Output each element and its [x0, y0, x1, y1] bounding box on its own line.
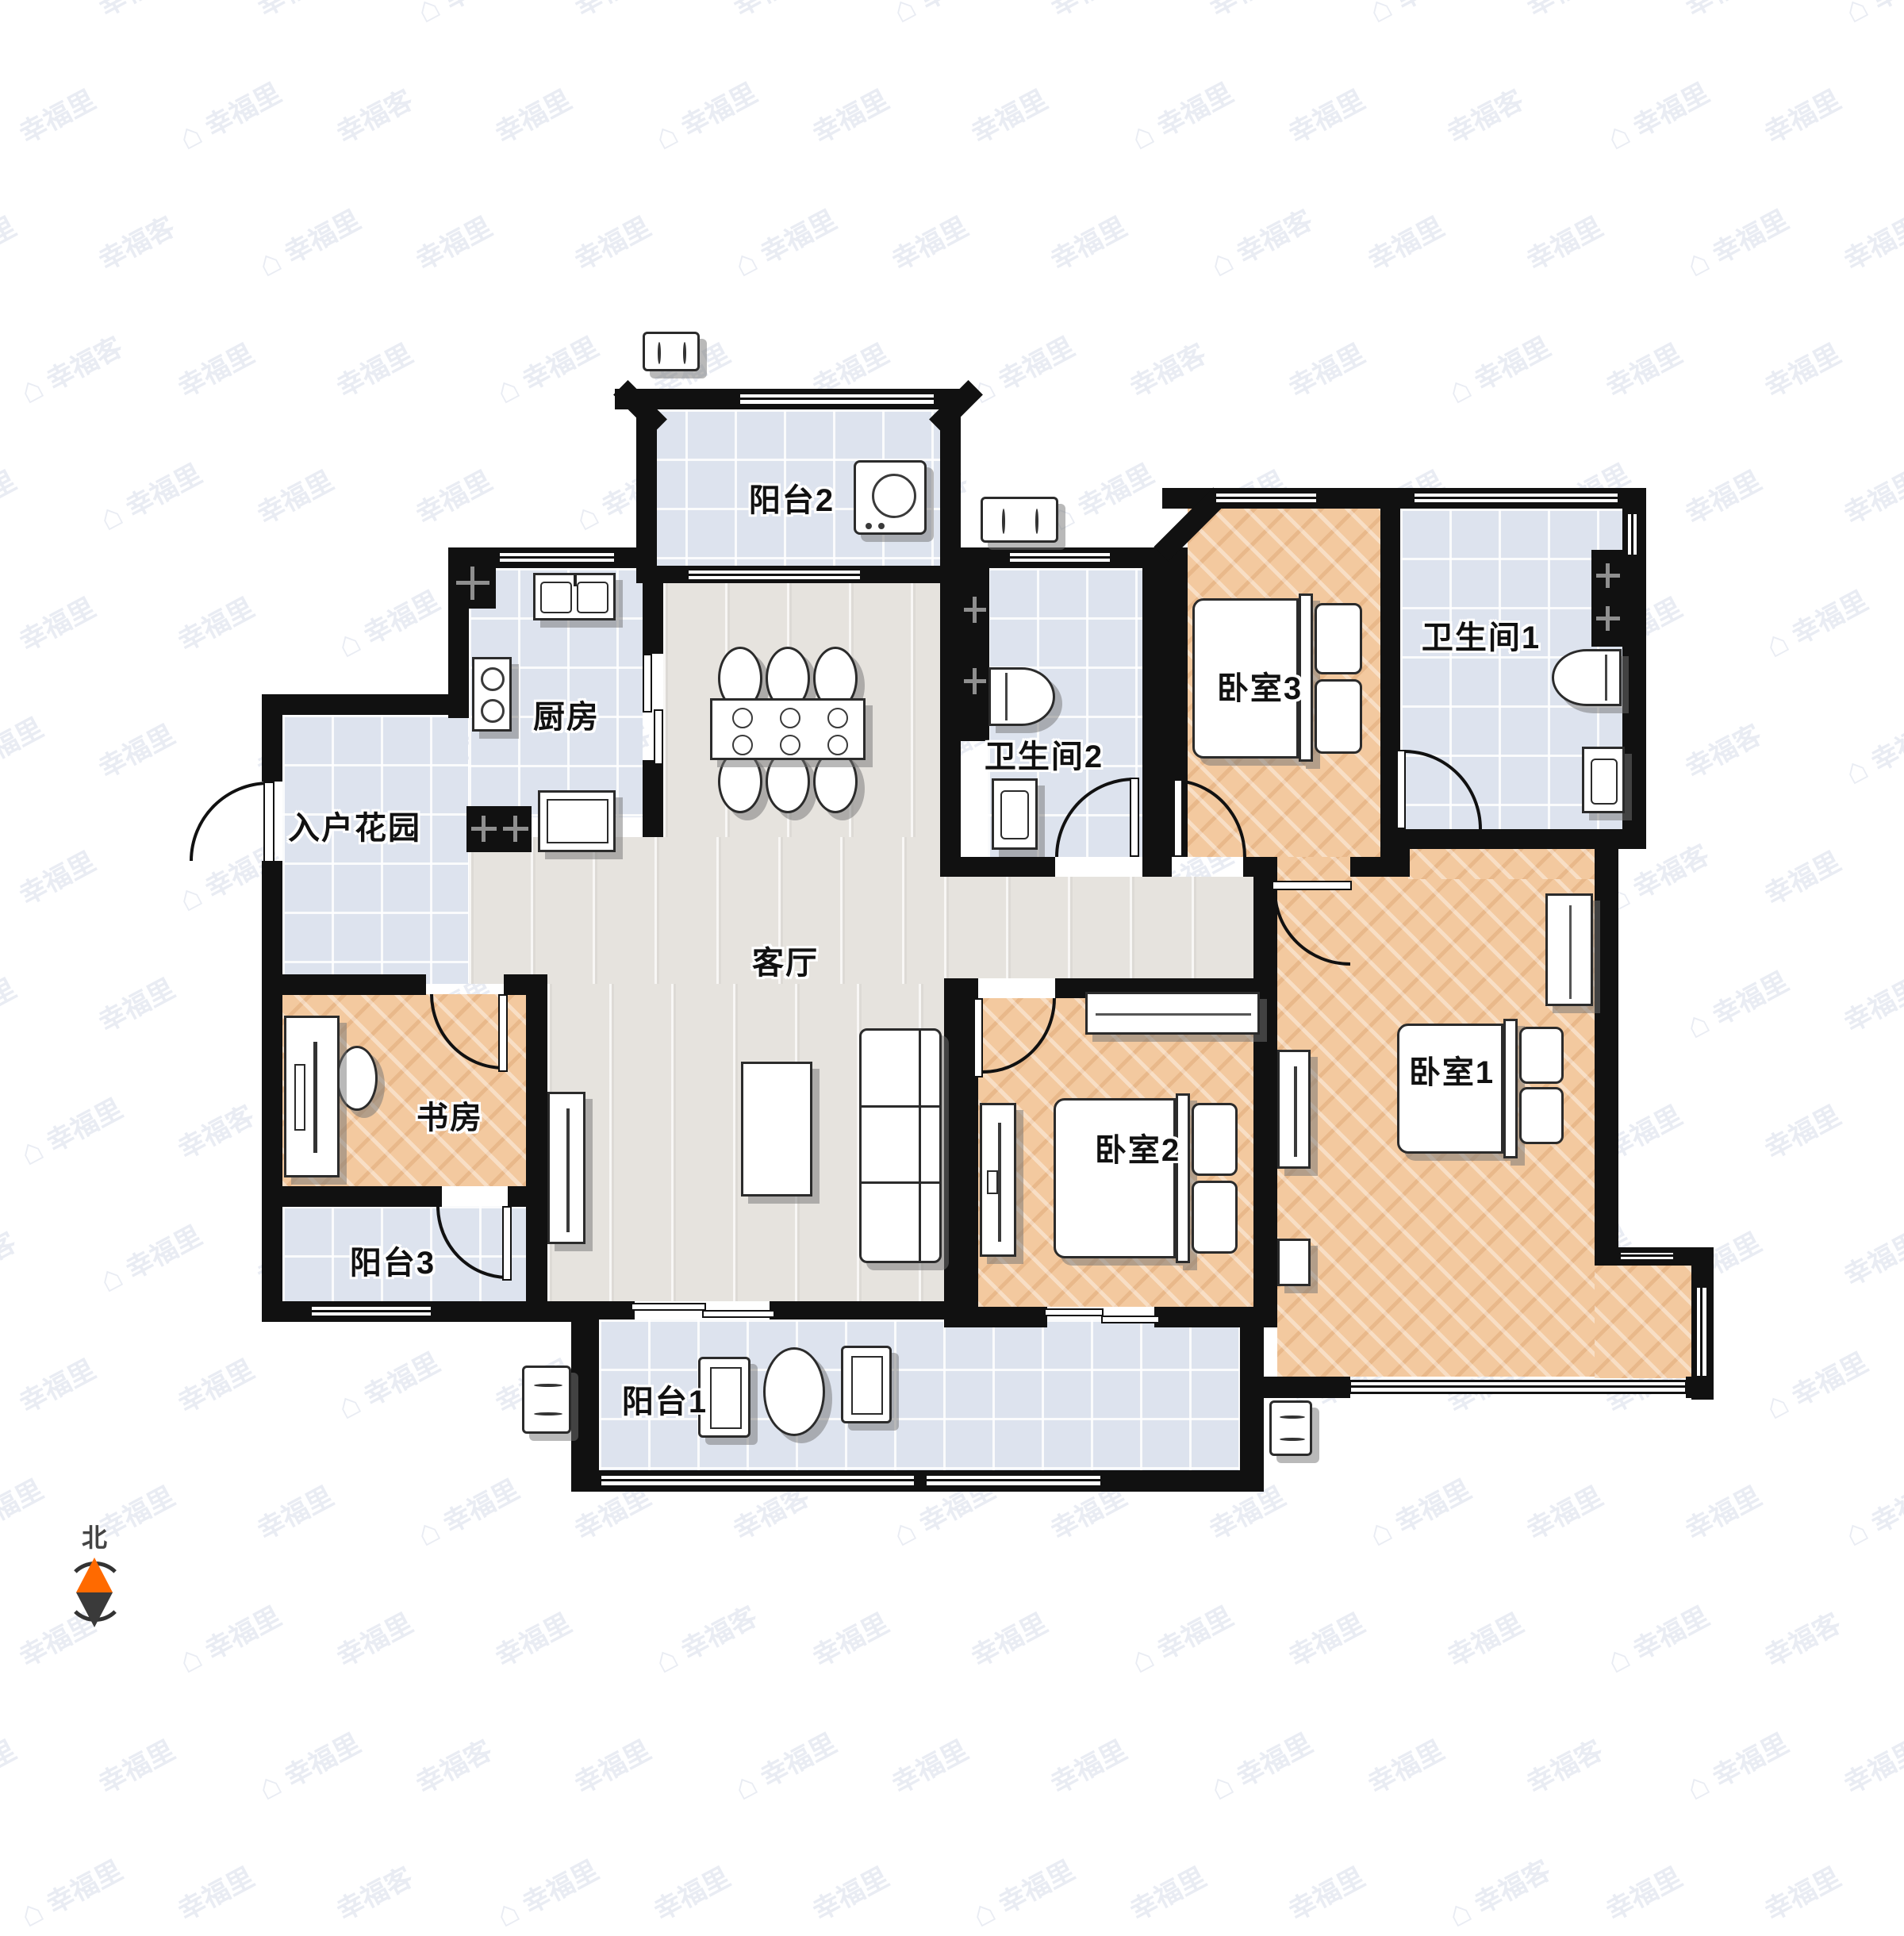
- wall: [1380, 829, 1410, 877]
- washing-machine-icon: [854, 460, 927, 535]
- bedroom2-balcony-sliding-door: [1044, 1308, 1104, 1316]
- balcony3-door-leaf: [502, 1206, 512, 1281]
- pillow-icon: [1315, 679, 1362, 754]
- wall: [1240, 1319, 1264, 1492]
- wall: [262, 974, 426, 995]
- sofa-icon: [859, 1028, 942, 1263]
- coffee-table-icon: [741, 1062, 812, 1197]
- pillow-icon: [1192, 1181, 1238, 1254]
- toilet-icon: [1552, 649, 1622, 706]
- label-bedroom3: 卧室3: [1217, 663, 1303, 709]
- wall: [1253, 1377, 1350, 1398]
- room-living-floor: [469, 837, 944, 984]
- flue-shaft: [466, 806, 532, 852]
- window: [738, 392, 936, 406]
- stove-icon: [472, 657, 512, 732]
- bay-window: [1349, 1380, 1687, 1394]
- label-bath1: 卫生间1: [1422, 612, 1541, 658]
- bath1-door-leaf: [1396, 750, 1406, 829]
- wall: [262, 694, 468, 715]
- wall: [940, 568, 961, 857]
- ac-outdoor-unit-icon: [643, 332, 700, 371]
- desk-chair-icon: [336, 1046, 378, 1111]
- wall: [547, 1301, 635, 1319]
- bathroom-sink-icon: [1582, 747, 1625, 813]
- wall: [1243, 857, 1277, 877]
- floor-plan: 阳台2 厨房 入户花园 卫生间2 卧室3 卫生间1 客厅 书房 阳台3 卧室2 …: [0, 0, 1904, 1904]
- bed-headboard: [1503, 1019, 1518, 1158]
- wall: [636, 409, 657, 568]
- window: [1214, 491, 1319, 505]
- wall: [526, 994, 547, 1304]
- cabinet-icon: [547, 1092, 585, 1244]
- wall: [770, 1301, 952, 1319]
- vent-shaft: [961, 568, 989, 741]
- window: [1008, 551, 1112, 564]
- window: [599, 1473, 916, 1488]
- bath2-door-leaf: [1130, 778, 1139, 857]
- pillow-icon: [1519, 1027, 1564, 1084]
- kitchen-sliding-door: [654, 709, 663, 765]
- wall: [1595, 849, 1618, 1266]
- bedroom2-balcony-sliding-door: [1101, 1316, 1160, 1323]
- wall: [508, 1186, 547, 1207]
- pillow-icon: [1519, 1087, 1564, 1144]
- bedroom3-door-leaf: [1173, 779, 1183, 857]
- wall: [504, 974, 547, 995]
- label-study: 书房: [416, 1092, 483, 1138]
- label-balcony2: 阳台2: [749, 474, 835, 520]
- wall: [1400, 829, 1622, 849]
- desk-icon: [284, 1016, 340, 1177]
- bay-window: [1618, 1250, 1676, 1262]
- label-bedroom1: 卧室1: [1409, 1047, 1495, 1093]
- flue-shaft: [450, 558, 496, 609]
- label-bedroom2: 卧室2: [1095, 1124, 1180, 1170]
- wall: [1686, 1377, 1714, 1398]
- wall: [940, 857, 1055, 877]
- wall: [571, 1301, 599, 1492]
- wall: [262, 1186, 442, 1207]
- ac-outdoor-unit-icon: [1269, 1400, 1312, 1456]
- label-kitchen: 厨房: [533, 691, 600, 737]
- window: [497, 551, 616, 564]
- label-balcony1: 阳台1: [622, 1376, 708, 1422]
- wall: [1142, 857, 1172, 877]
- label-entry-garden: 入户花园: [288, 802, 421, 848]
- window: [1412, 491, 1620, 505]
- compass-north-arrow: [76, 1558, 113, 1592]
- label-living: 客厅: [752, 937, 819, 983]
- bathroom-sink-icon: [992, 778, 1038, 850]
- wall: [262, 861, 282, 1321]
- compass-south-arrow: [76, 1592, 113, 1627]
- study-door-leaf: [498, 994, 508, 1072]
- bedroom1-door-leaf: [1272, 881, 1352, 890]
- balcony1-sliding-door: [702, 1310, 775, 1318]
- toilet-icon: [988, 667, 1055, 726]
- balcony1-sliding-door: [631, 1303, 706, 1311]
- tv-cabinet-icon: [980, 1103, 1016, 1257]
- vent-shaft: [1591, 550, 1625, 647]
- bed-icon: [1054, 1098, 1176, 1258]
- wall: [643, 760, 663, 837]
- window: [1626, 512, 1639, 557]
- bay-window: [1695, 1285, 1709, 1378]
- kitchen-sliding-door: [643, 654, 652, 713]
- fridge-icon: [538, 790, 616, 852]
- wall: [944, 1307, 1047, 1327]
- bedroom2-door-leaf: [973, 998, 983, 1077]
- ac-outdoor-unit-icon: [981, 497, 1058, 543]
- compass-north-label: 北: [82, 1518, 107, 1554]
- wardrobe-icon: [1085, 992, 1260, 1035]
- room-bedroom1-bay-floor: [1595, 1266, 1694, 1378]
- pillow-icon: [1315, 603, 1362, 674]
- entry-door-leaf: [263, 782, 274, 862]
- wall: [1154, 1307, 1277, 1327]
- balcony-chair-icon: [841, 1346, 892, 1423]
- label-balcony3: 阳台3: [350, 1237, 436, 1283]
- kitchen-sink-icon: [533, 573, 616, 620]
- wardrobe-icon: [1545, 893, 1593, 1006]
- wall: [944, 978, 974, 998]
- pillow-icon: [1192, 1103, 1238, 1176]
- window: [309, 1304, 433, 1318]
- window: [924, 1473, 1103, 1488]
- balcony-table-icon: [763, 1347, 825, 1436]
- tv-cabinet-icon: [1277, 1050, 1311, 1169]
- room-bedroom1-floor: [1408, 847, 1595, 879]
- ac-outdoor-unit-icon: [522, 1366, 571, 1434]
- entry-door-arc: [190, 782, 269, 861]
- bed-headboard: [1176, 1093, 1190, 1263]
- room-entry-garden-floor: [282, 715, 468, 984]
- dining-table-icon: [710, 698, 866, 760]
- label-bath2: 卫生间2: [985, 731, 1104, 777]
- wall: [1253, 857, 1277, 1327]
- room-living-corridor-floor: [944, 877, 1253, 978]
- window-slider: [686, 568, 862, 582]
- dresser-icon: [1277, 1239, 1311, 1286]
